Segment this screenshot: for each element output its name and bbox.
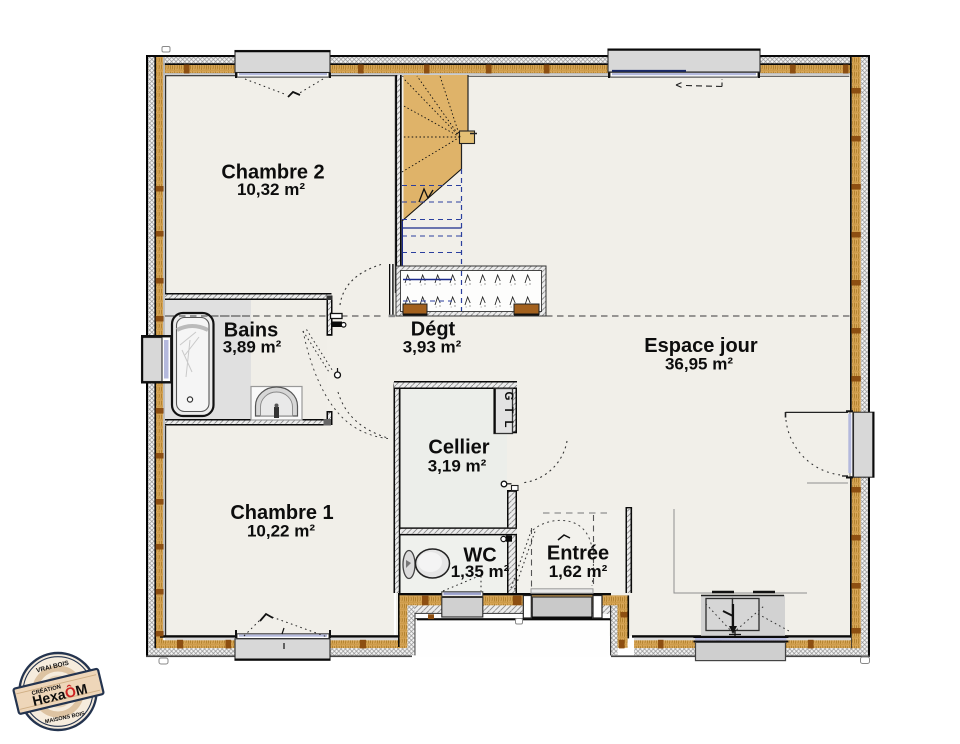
svg-text:36,95 m²: 36,95 m² xyxy=(665,355,733,374)
svg-text:3,89 m²: 3,89 m² xyxy=(223,338,282,357)
svg-text:1,62 m²: 1,62 m² xyxy=(549,562,608,581)
svg-text:Cellier: Cellier xyxy=(428,437,489,459)
svg-text:10,22 m²: 10,22 m² xyxy=(247,522,315,541)
svg-text:3,93 m²: 3,93 m² xyxy=(403,338,462,357)
svg-text:1,35 m²: 1,35 m² xyxy=(451,562,510,581)
svg-text:10,32 m²: 10,32 m² xyxy=(237,180,305,199)
svg-text:G: G xyxy=(502,392,514,401)
svg-text:T: T xyxy=(502,406,514,413)
svg-text:3,19 m²: 3,19 m² xyxy=(428,457,487,476)
svg-text:L: L xyxy=(502,420,514,427)
